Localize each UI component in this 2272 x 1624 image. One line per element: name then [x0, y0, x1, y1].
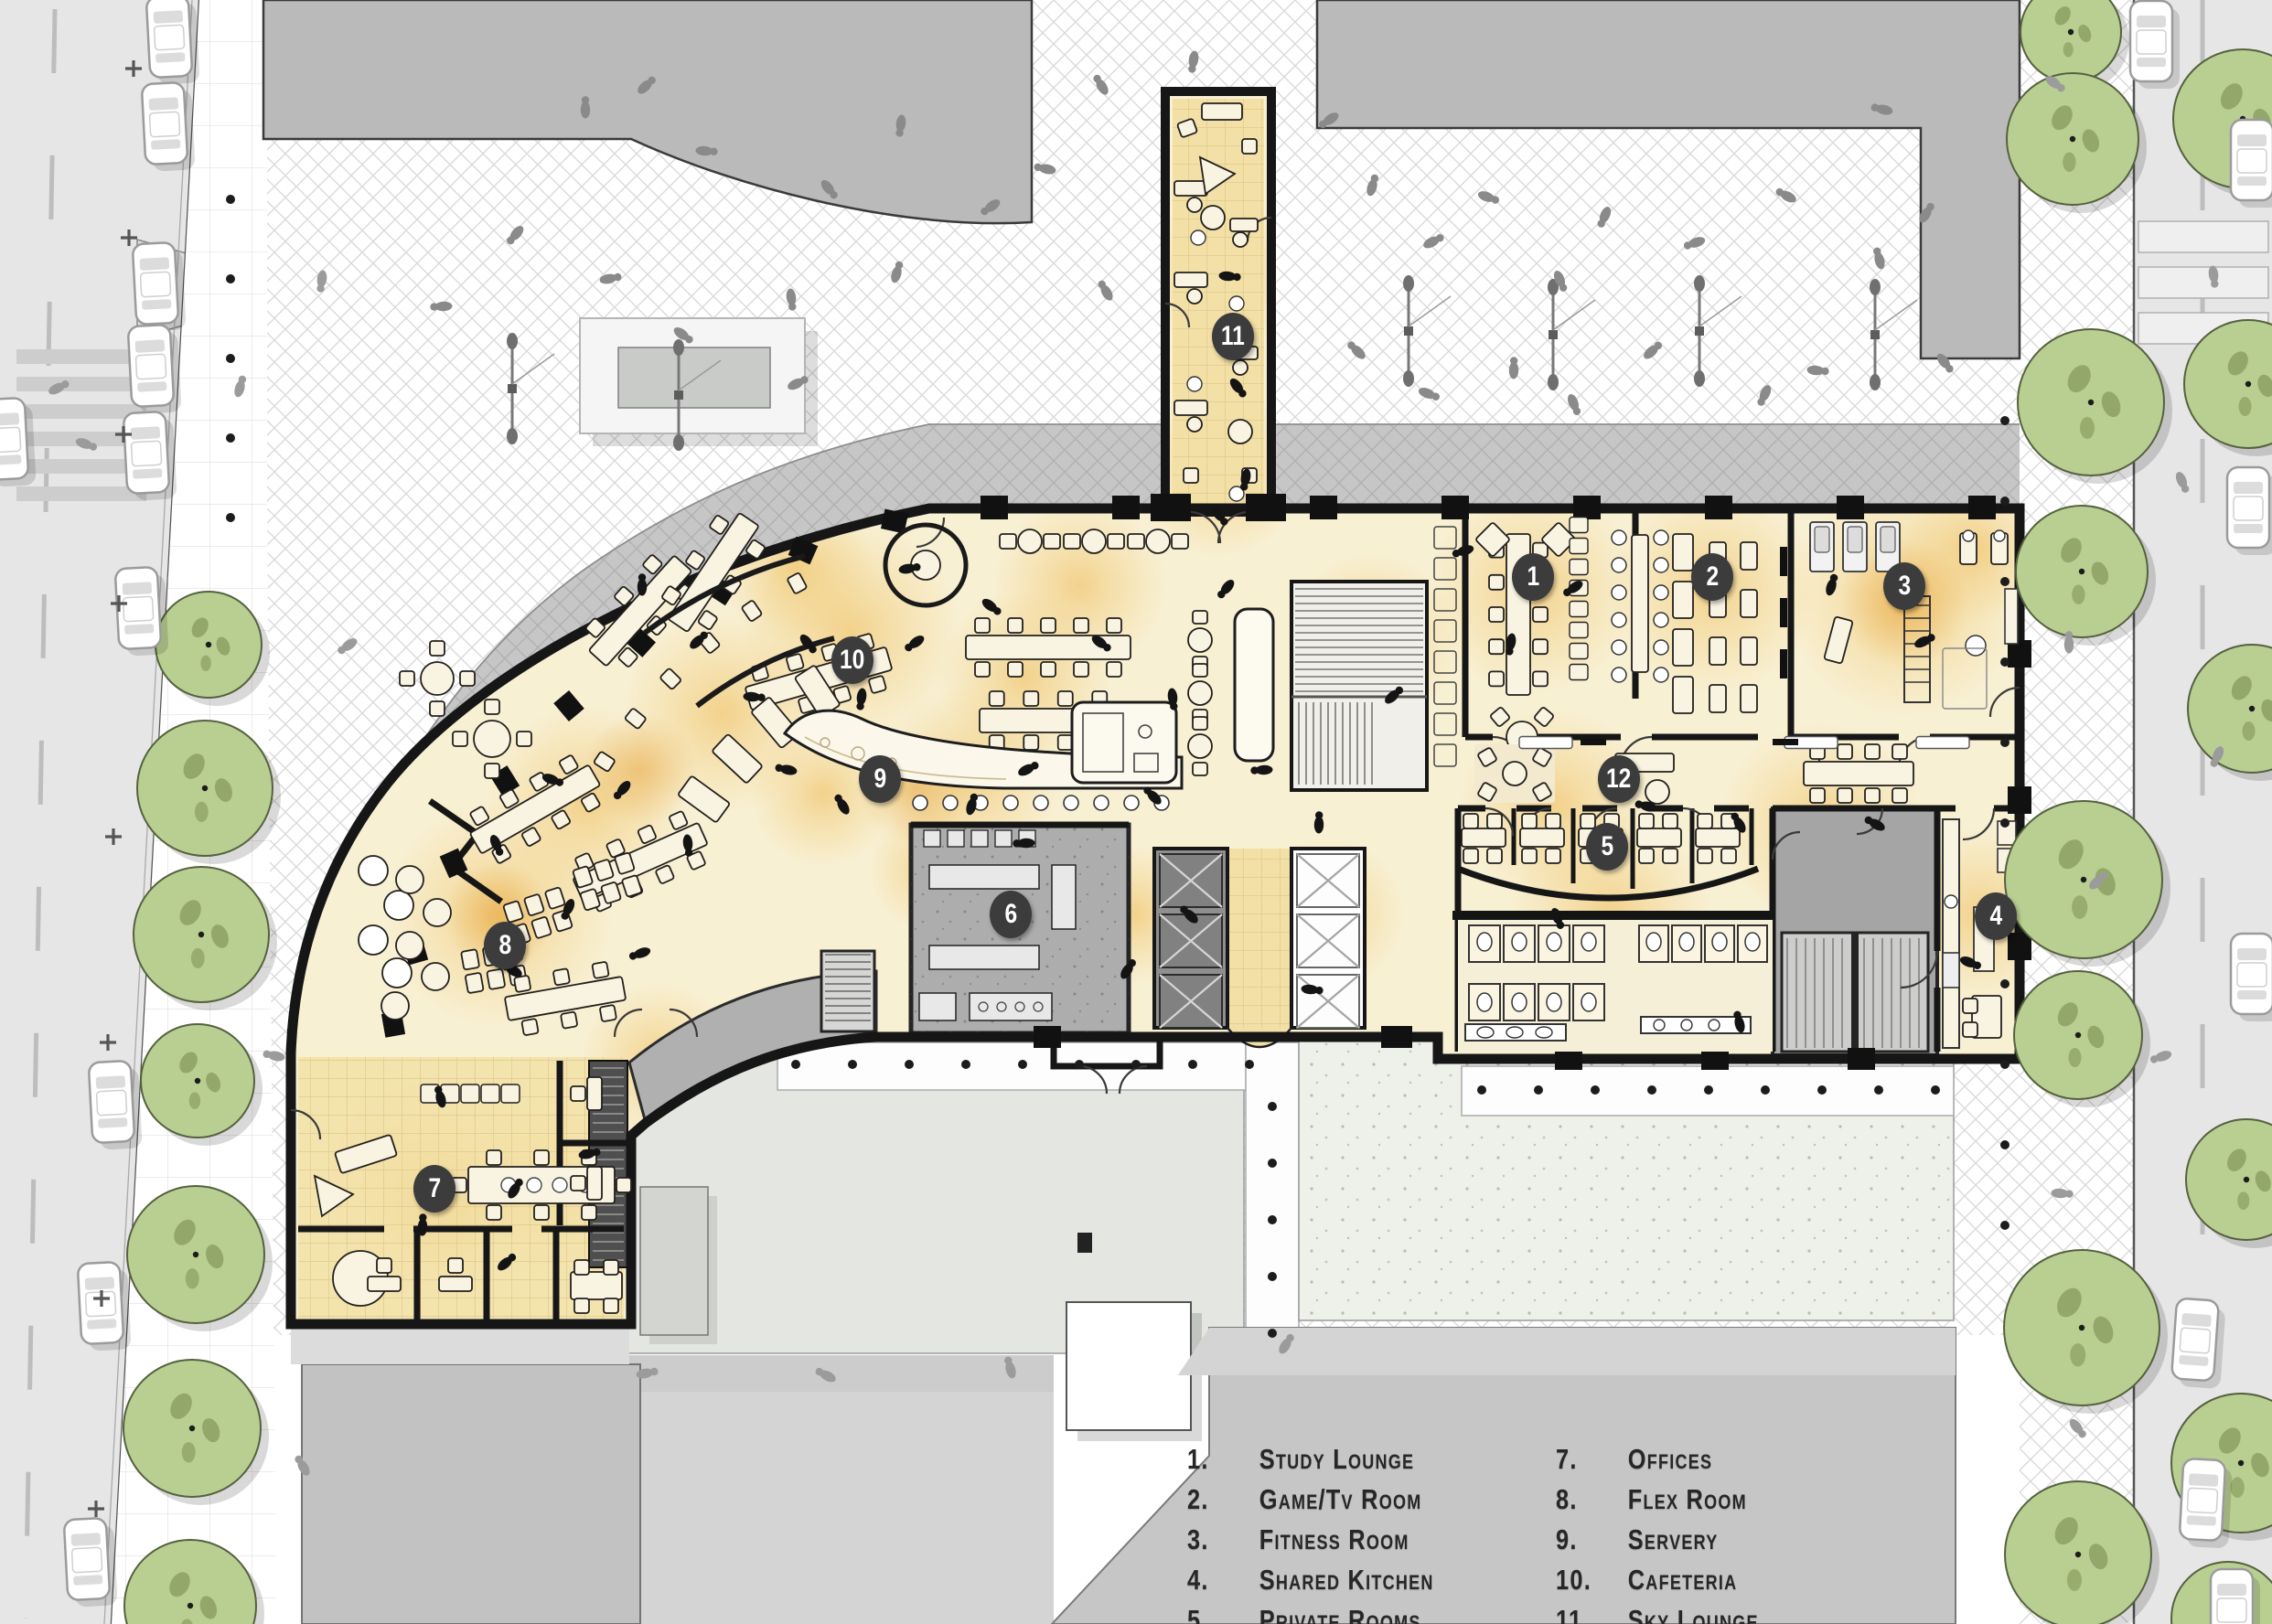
- floor-plan-drawing: [0, 0, 2272, 1624]
- legend-entry: 5.Private Rooms: [1187, 1604, 1434, 1624]
- room-marker-1: 1: [1512, 553, 1554, 601]
- plaza-planter: [580, 318, 818, 446]
- legend-label: Sky Lounge: [1628, 1604, 1759, 1624]
- room-marker-9: 9: [859, 755, 901, 803]
- legend-label: Study Lounge: [1259, 1443, 1415, 1476]
- room-marker-2: 2: [1691, 553, 1733, 601]
- room-marker-3: 3: [1883, 562, 1925, 610]
- legend-column-1: 1.Study Lounge 2.Game/Tv Room 3.Fitness …: [1187, 1443, 1488, 1624]
- context-building-bottom-left: [302, 1364, 640, 1624]
- legend-entry: 2.Game/Tv Room: [1187, 1483, 1434, 1516]
- legend-entry: 8.Flex Room: [1556, 1483, 1856, 1516]
- legend-number: 4.: [1187, 1564, 1259, 1597]
- room-marker-7: 7: [413, 1165, 455, 1213]
- legend-number: 7.: [1556, 1443, 1628, 1476]
- legend-number: 8.: [1556, 1483, 1628, 1516]
- room-marker-4: 4: [1975, 892, 2017, 940]
- room-marker-6: 6: [990, 891, 1032, 938]
- legend-entry: 7.Offices: [1556, 1443, 1856, 1476]
- legend-label: Offices: [1628, 1443, 1713, 1476]
- legend-entry: 11.Sky Lounge: [1556, 1604, 1856, 1624]
- legend-entry: 3.Fitness Room: [1187, 1523, 1434, 1556]
- legend-label: Fitness Room: [1259, 1523, 1409, 1556]
- legend-number: 5.: [1187, 1604, 1259, 1624]
- legend-label: Shared Kitchen: [1259, 1564, 1434, 1597]
- room-marker-5: 5: [1586, 823, 1628, 871]
- legend-entry: 10.Cafeteria: [1556, 1564, 1856, 1597]
- legend-number: 9.: [1556, 1523, 1628, 1556]
- legend-number: 11.: [1556, 1604, 1628, 1624]
- legend-number: 3.: [1187, 1523, 1259, 1556]
- legend-number: 2.: [1187, 1483, 1259, 1516]
- legend-label: Cafeteria: [1628, 1564, 1738, 1597]
- legend-number: 1.: [1187, 1443, 1259, 1476]
- legend-column-2: 7.Offices 8.Flex Room 9.Servery 10.Cafet…: [1556, 1443, 1922, 1624]
- room-marker-11: 11: [1212, 313, 1254, 360]
- room-marker-12: 12: [1598, 755, 1640, 803]
- legend-entry: 9.Servery: [1556, 1523, 1856, 1556]
- bathroom-fixtures: [1458, 920, 1773, 1052]
- legend-number: 10.: [1556, 1564, 1628, 1597]
- legend-label: Servery: [1628, 1523, 1719, 1556]
- room-marker-8: 8: [484, 922, 526, 969]
- room-legend: 1.Study Lounge 2.Game/Tv Room 3.Fitness …: [1187, 1443, 1956, 1624]
- legend-label: Flex Room: [1628, 1483, 1747, 1516]
- service-kiosk: [1072, 702, 1176, 783]
- room-marker-10: 10: [831, 636, 873, 684]
- legend-label: Game/Tv Room: [1259, 1483, 1422, 1516]
- legend-entry: 1.Study Lounge: [1187, 1443, 1434, 1476]
- site-plan: 1 2 3 4 5 6 7 8 9 10 11 12 1.Study Loung…: [0, 0, 2272, 1624]
- legend-label: Private Rooms: [1259, 1604, 1421, 1624]
- legend-entry: 4.Shared Kitchen: [1187, 1564, 1434, 1597]
